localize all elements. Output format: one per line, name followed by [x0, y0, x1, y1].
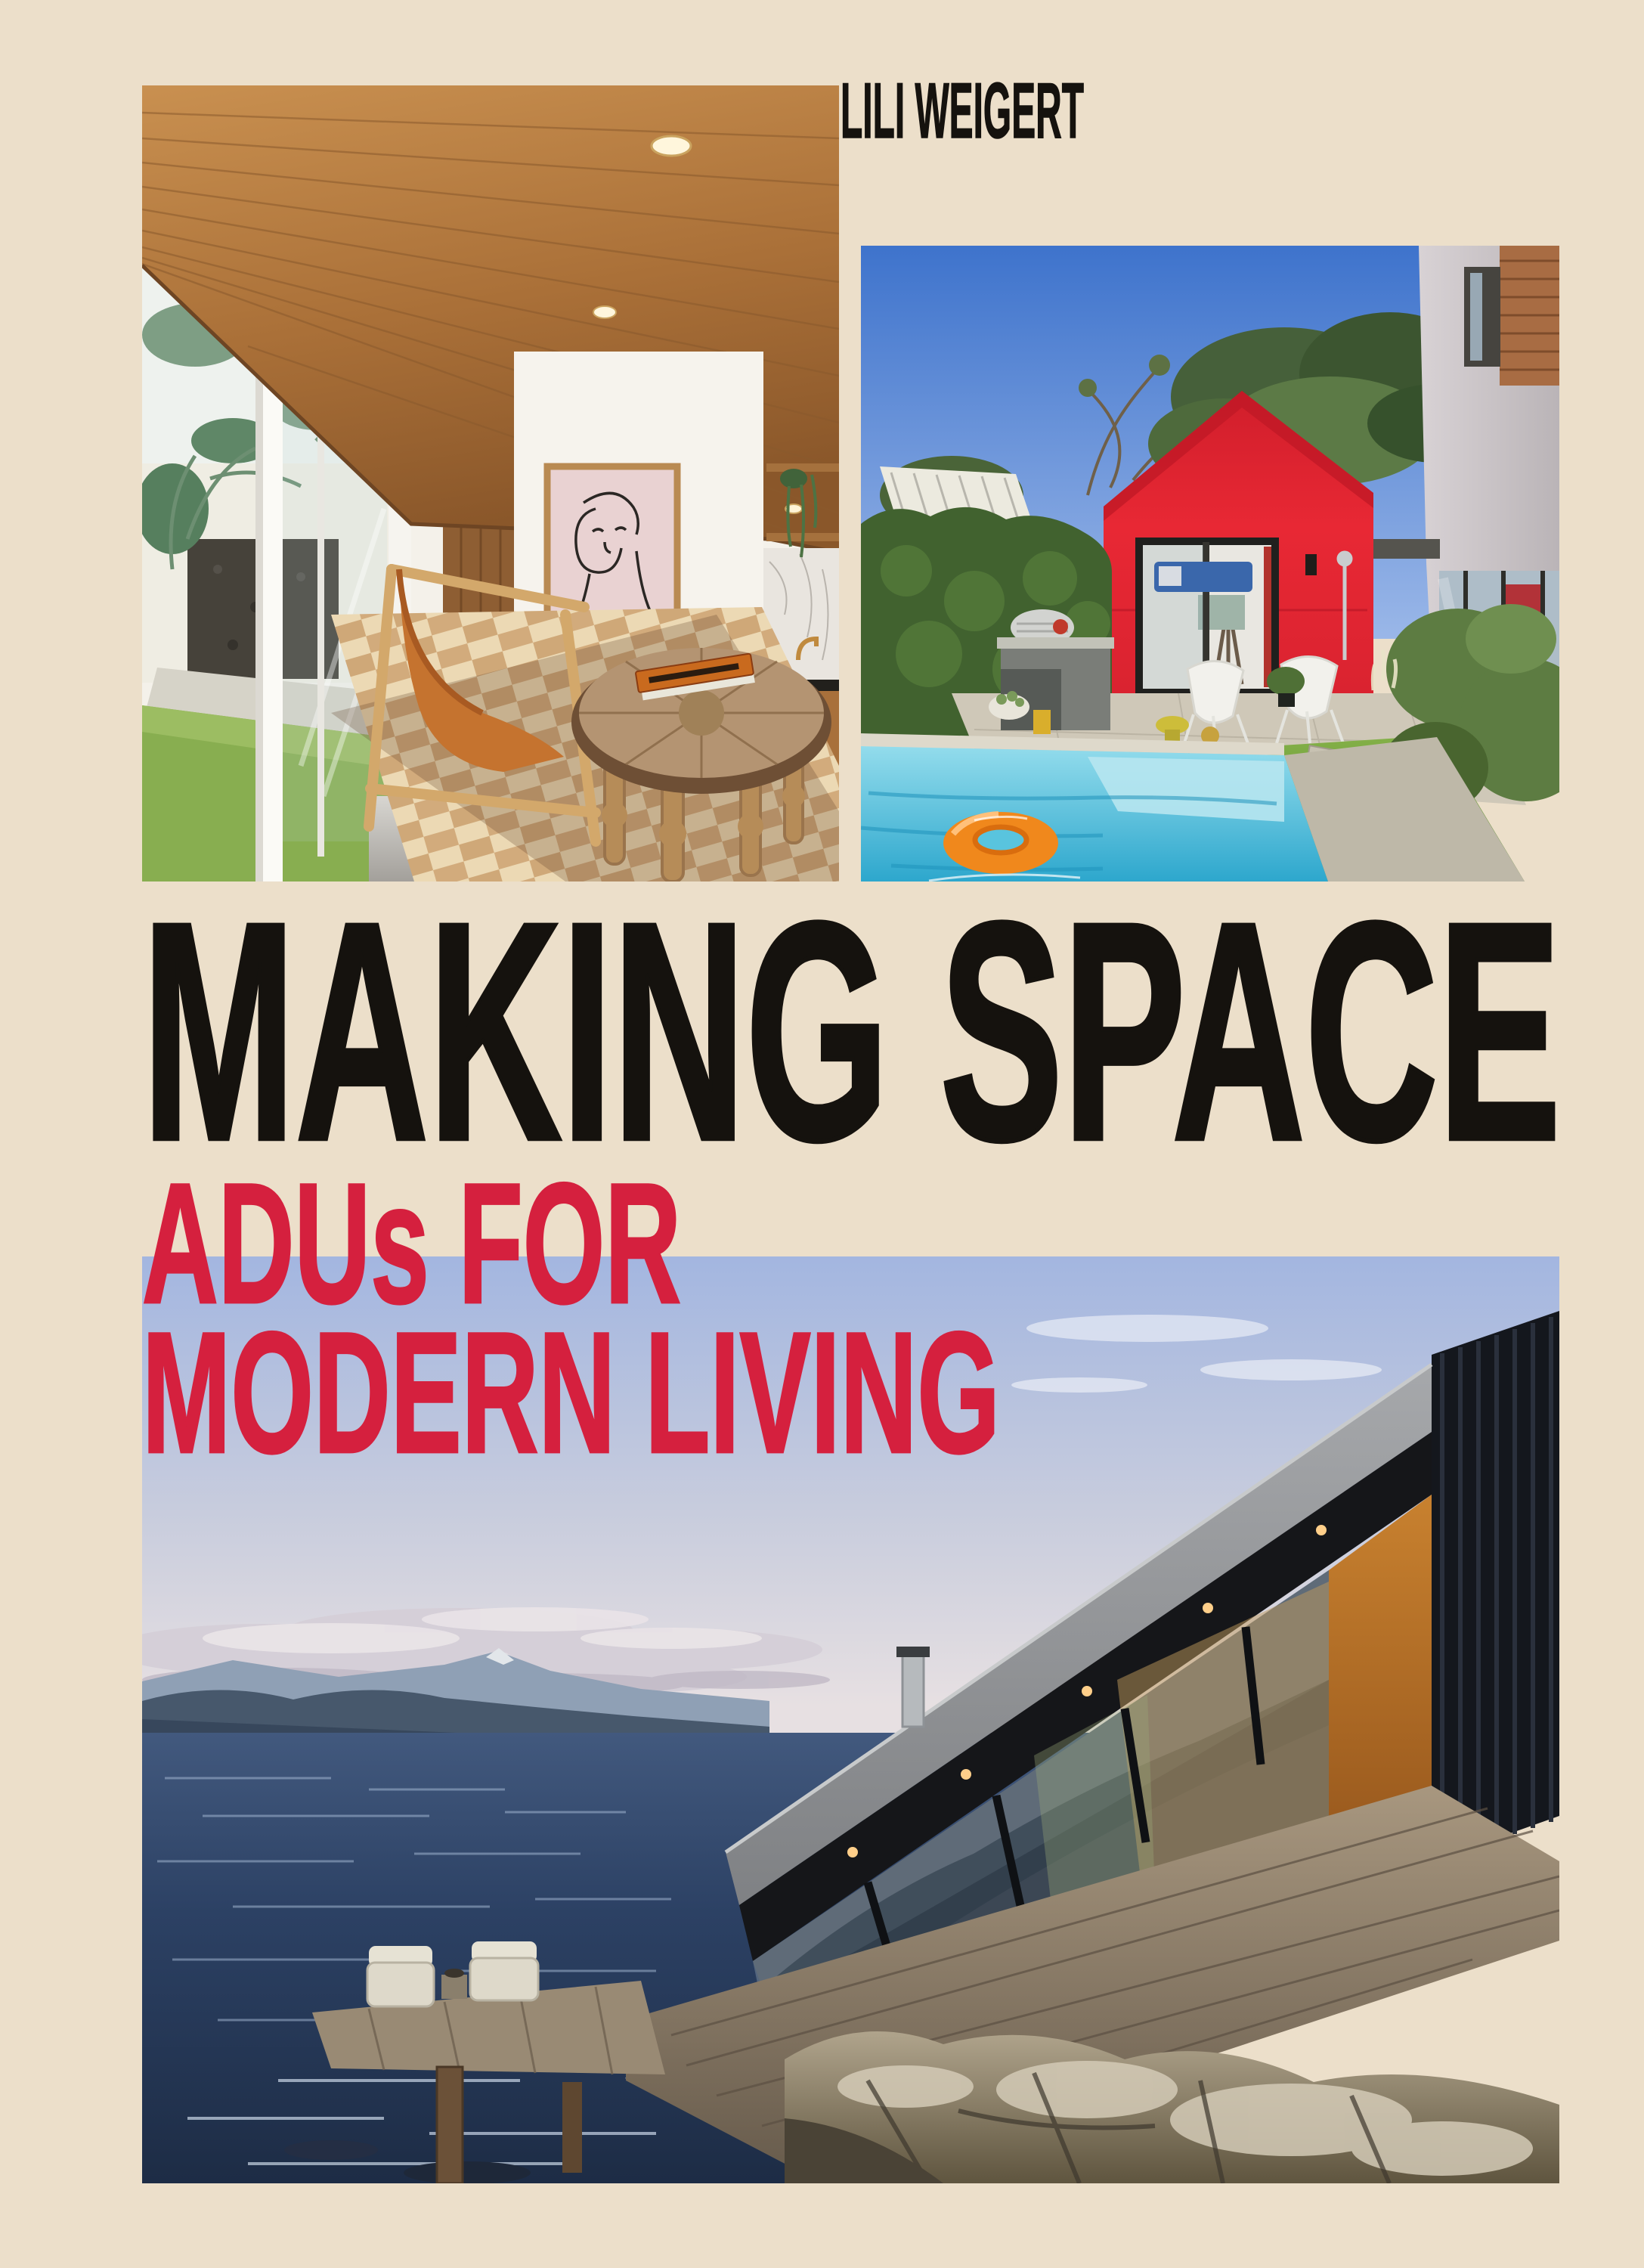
subtitle-line-2-text: MODERN LIVING — [142, 1297, 1000, 1489]
spine-shadow — [0, 0, 98, 2268]
book-cover: LILI WEIGERT — [0, 0, 1644, 2268]
author-name: LILI WEIGERT — [841, 83, 1084, 139]
book-title: MAKING SPACE — [142, 924, 1561, 1145]
backyard-illustration — [861, 246, 1559, 881]
photo-interior-living-room — [142, 85, 839, 881]
subtitle-line-1: ADUs FOR — [142, 1184, 681, 1306]
subtitle-line-2: MODERN LIVING — [142, 1333, 1000, 1455]
photo-backyard-pool-red-adu — [861, 246, 1559, 881]
author-name-text: LILI WEIGERT — [841, 67, 1084, 155]
interior-illustration — [142, 85, 839, 881]
